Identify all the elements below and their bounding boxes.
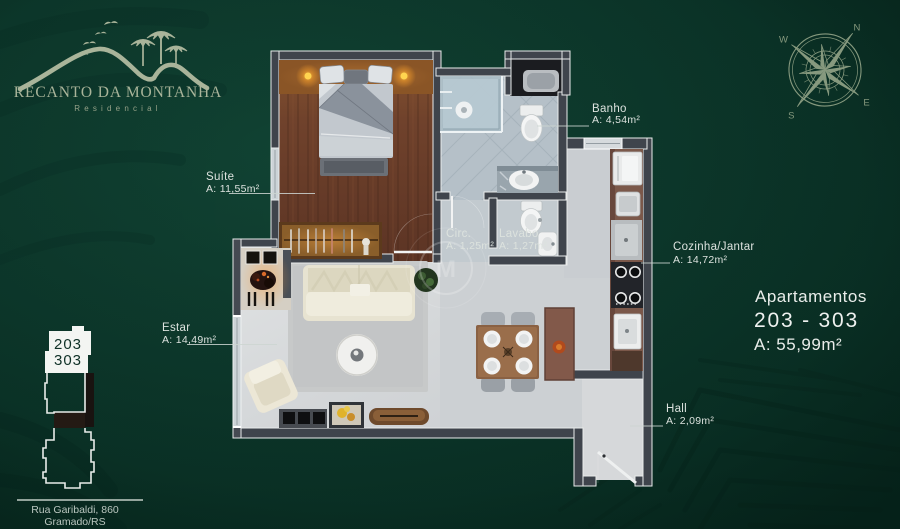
svg-text:Apartamentos: Apartamentos — [755, 287, 867, 306]
svg-text:Cozinha/Jantar: Cozinha/Jantar — [673, 241, 755, 253]
svg-text:203: 203 — [54, 336, 82, 353]
svg-text:Gramado/RS: Gramado/RS — [44, 516, 105, 528]
svg-text:N: N — [853, 23, 860, 34]
svg-text:M: M — [436, 256, 456, 283]
svg-text:Residencial: Residencial — [74, 104, 162, 113]
svg-text:Lavabo: Lavabo — [499, 228, 539, 240]
svg-text:A: 14,72m²: A: 14,72m² — [673, 254, 728, 266]
svg-text:A: 55,99m²: A: 55,99m² — [754, 335, 842, 354]
svg-text:W: W — [779, 35, 788, 46]
svg-text:303: 303 — [54, 352, 82, 369]
svg-text:Hall: Hall — [666, 403, 687, 415]
svg-text:E: E — [863, 97, 869, 108]
svg-text:Rua Garibaldi, 860: Rua Garibaldi, 860 — [31, 504, 119, 516]
svg-text:A: 2,09m²: A: 2,09m² — [666, 415, 714, 427]
svg-text:203 - 303: 203 - 303 — [754, 309, 859, 332]
svg-text:A: 1,27m²: A: 1,27m² — [499, 240, 547, 252]
svg-text:Suíte: Suíte — [206, 171, 234, 183]
svg-text:S: S — [788, 111, 794, 122]
svg-text:Circ.: Circ. — [446, 228, 471, 240]
svg-text:RECANTO DA MONTANHA: RECANTO DA MONTANHA — [14, 84, 222, 101]
svg-text:Estar: Estar — [162, 322, 190, 334]
svg-text:A: 4,54m²: A: 4,54m² — [592, 114, 640, 126]
svg-text:A: 1,25m²: A: 1,25m² — [446, 240, 494, 252]
